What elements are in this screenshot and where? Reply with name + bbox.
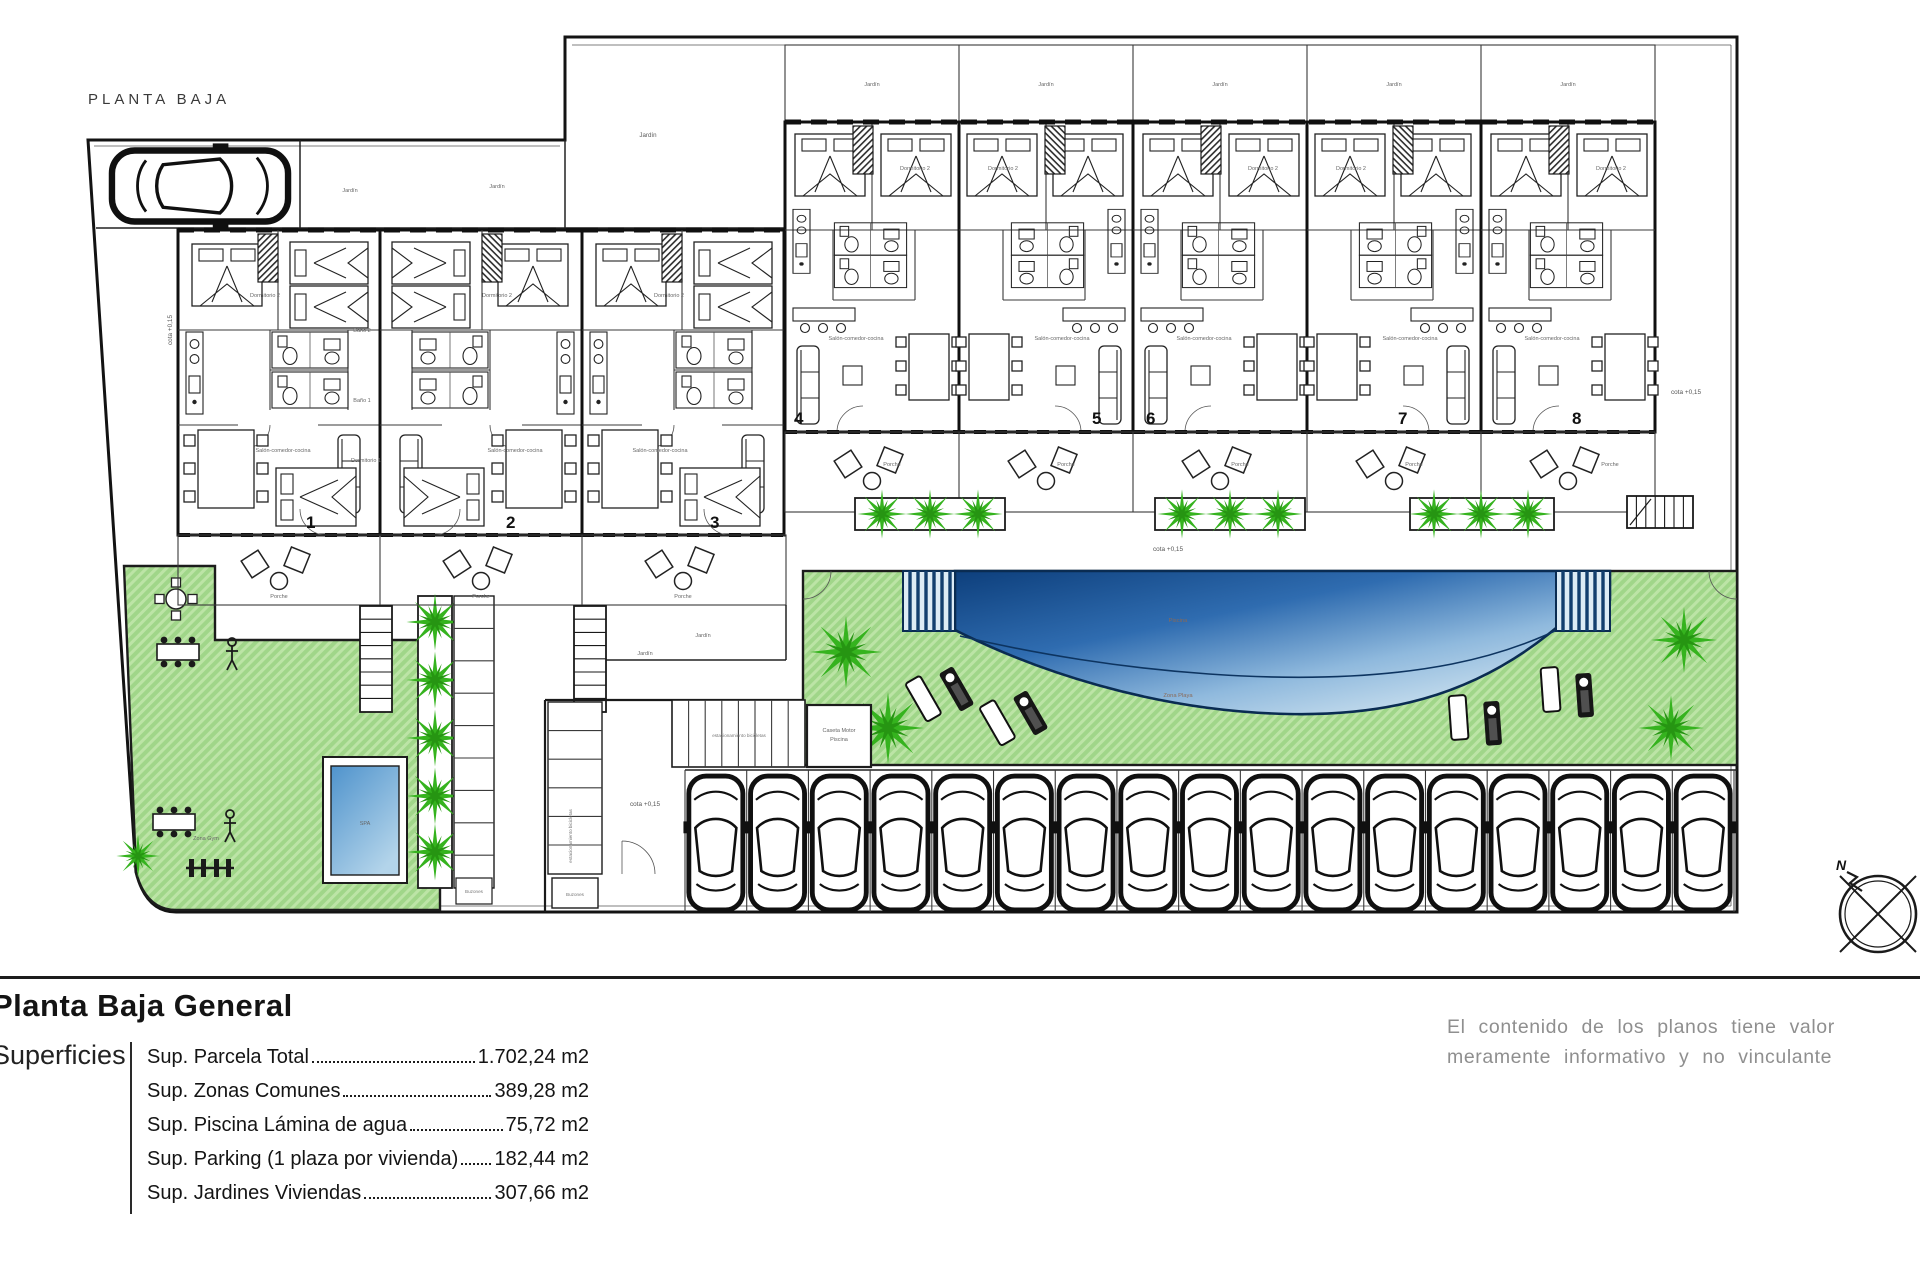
surface-value: 389,28 m2: [494, 1080, 589, 1103]
unit-number-5: 5: [1092, 409, 1101, 428]
stairs-icon: [360, 606, 392, 712]
level-label: cota +0,15: [167, 315, 174, 345]
room-label: Baño 2: [353, 328, 370, 334]
compass-rose: N: [1836, 857, 1916, 952]
garden-label: Jardín: [1212, 82, 1227, 88]
room-label: Salón-comedor-cocina: [828, 336, 884, 342]
porch-label: Porche: [883, 462, 900, 468]
surface-row: Sup. Parcela Total 1.702,24 m2: [147, 1046, 589, 1080]
parking-cars: [683, 776, 1735, 910]
room-label: Dormitorio 2: [482, 293, 512, 299]
garden-label: Jardín: [1386, 82, 1401, 88]
stairs-icon: [1627, 496, 1693, 528]
parked-car-icon: [930, 776, 995, 910]
dot-leader: [364, 1197, 491, 1199]
garden-label: Jardín: [1038, 82, 1053, 88]
spa-label: SPA: [360, 821, 371, 827]
room-label: Salón-comedor-cocina: [1034, 336, 1090, 342]
room-label: Dormitorio 2: [1248, 166, 1278, 172]
room-label: Dormitorio 2: [1336, 166, 1366, 172]
surface-value: 182,44 m2: [494, 1148, 589, 1171]
storage-stall-column: Buzones: [454, 596, 494, 904]
parked-car-icon: [1239, 776, 1304, 910]
surface-row: Sup. Parking (1 plaza por vivienda) 182,…: [147, 1148, 589, 1182]
room-label: Salón-comedor-cocina: [255, 448, 311, 454]
title-block-separator: [130, 1042, 132, 1214]
parked-car-icon: [683, 776, 748, 910]
title-block-divider: [0, 976, 1920, 979]
surface-label: Sup. Parking (1 plaza por vivienda): [147, 1148, 458, 1171]
disclaimer-line-1: El contenido de los planos tiene valor: [1447, 1012, 1835, 1042]
porch-label: Porche: [1601, 462, 1618, 468]
parked-car-icon: [1177, 776, 1242, 910]
parked-car-icon: [1609, 776, 1674, 910]
unit-number-6: 6: [1146, 409, 1155, 428]
parked-car-icon: [869, 776, 934, 910]
sheet-title: Planta Baja General: [0, 988, 293, 1024]
palm-tree-icon: [1651, 607, 1717, 673]
level-label: cota +0,15: [1153, 546, 1183, 553]
porch-label: Porche: [1231, 462, 1248, 468]
surface-label: Sup. Zonas Comunes: [147, 1080, 340, 1103]
garden-label: Jardín: [639, 132, 657, 139]
surface-table: Sup. Parcela Total 1.702,24 m2 Sup. Zona…: [147, 1046, 589, 1216]
svg-text:Caseta Motor: Caseta Motor: [822, 728, 855, 734]
surfaces-heading: Superficies: [0, 1040, 126, 1071]
room-label: Salón-comedor-cocina: [632, 448, 688, 454]
unit-number-3: 3: [710, 513, 719, 532]
surface-label: Sup. Jardines Viviendas: [147, 1182, 361, 1205]
porch-label: Porche: [1405, 462, 1422, 468]
porch-label: Porche: [1057, 462, 1074, 468]
mailboxes-label: Buzones: [566, 892, 585, 897]
room-label: Dormitorio 2: [654, 293, 684, 299]
parked-car-icon: [1486, 776, 1551, 910]
parked-car-icon: [1301, 776, 1366, 910]
dot-leader: [410, 1129, 502, 1131]
room-label: Dormitorio 2: [988, 166, 1018, 172]
palm-tree-icon: [1638, 695, 1704, 761]
room-label: Salón-comedor-cocina: [1382, 336, 1438, 342]
room-label: Salón-comedor-cocina: [487, 448, 543, 454]
room-label: Dormitorio 2: [250, 293, 280, 299]
mailboxes-label: Buzones: [465, 889, 484, 894]
parked-car-icon: [1054, 776, 1119, 910]
dot-leader: [461, 1163, 491, 1165]
pool-garden: Piscina Zona Playa: [803, 571, 1737, 765]
parked-car-icon: [1671, 776, 1736, 910]
plan-title: PLANTA BAJA: [88, 91, 230, 108]
level-label: cota +0,15: [1671, 389, 1701, 396]
bike-parking-label: estacionamiento bicicletas: [568, 808, 573, 862]
room-label: Dormitorio 1: [351, 458, 381, 464]
garden-label: Jardín: [489, 184, 504, 190]
pool-label: Piscina: [1169, 618, 1188, 624]
site-plan-drawing: PLANTA BAJA Jardín Jardín Jardín cota +0…: [0, 0, 1920, 978]
porch-label: Porche: [270, 594, 287, 600]
unit-number-8: 8: [1572, 409, 1581, 428]
surface-row: Sup. Piscina Lámina de agua 75,72 m2: [147, 1114, 589, 1148]
bike-parking-label: estacionamiento bicicletas: [712, 733, 766, 738]
surface-value: 75,72 m2: [506, 1114, 589, 1137]
parked-car-icon: [992, 776, 1057, 910]
north-label: N: [1836, 857, 1847, 873]
unit-number-1: 1: [306, 513, 315, 532]
room-label: Dormitorio 2: [900, 166, 930, 172]
gym-zone-label: Zona Gym: [193, 836, 219, 842]
garden-label: Jardín: [1560, 82, 1575, 88]
unit-number-4: 4: [794, 409, 804, 428]
stairs-icon: [574, 606, 606, 712]
parked-car-icon: [745, 776, 810, 910]
room-label: Salón-comedor-cocina: [1524, 336, 1580, 342]
palm-tree-icon: [116, 834, 159, 877]
disclaimer-line-2: meramente informativo y no vinculante: [1447, 1042, 1835, 1072]
surface-row: Sup. Zonas Comunes 389,28 m2: [147, 1080, 589, 1114]
disclaimer-text: El contenido de los planos tiene valor m…: [1447, 1012, 1835, 1072]
parked-car-icon: [1115, 776, 1180, 910]
garden-label: Jardín: [342, 188, 357, 194]
parked-car-icon: [112, 143, 288, 228]
surface-value: 307,66 m2: [494, 1182, 589, 1205]
beach-zone-label: Zona Playa: [1163, 693, 1193, 699]
porch-label: Porche: [472, 594, 489, 600]
room-label: Salón-comedor-cocina: [1176, 336, 1232, 342]
parked-car-icon: [1424, 776, 1489, 910]
floor-plan-page: { "plan": { "title": "PLANTA BAJA", "uni…: [0, 0, 1920, 1280]
surface-row: Sup. Jardines Viviendas 307,66 m2: [147, 1182, 589, 1216]
unit-number-2: 2: [506, 513, 515, 532]
parked-car-icon: [1547, 776, 1612, 910]
parked-car-icon: [1362, 776, 1427, 910]
surface-label: Sup. Parcela Total: [147, 1046, 309, 1069]
level-label: cota +0,15: [630, 801, 660, 808]
dot-leader: [343, 1095, 491, 1097]
surface-value: 1.702,24 m2: [478, 1046, 589, 1069]
garden-label: Jardín: [864, 82, 879, 88]
palm-tree-icon: [810, 616, 882, 688]
unit-number-7: 7: [1398, 409, 1407, 428]
pool-motor-shed: Caseta Motor Piscina: [807, 705, 871, 767]
garden-label: Jardín: [695, 633, 710, 639]
entry-car-bay: [96, 140, 785, 229]
spa-pool: SPA: [323, 757, 407, 883]
room-label: Baño 1: [353, 398, 370, 404]
garden-label: Jardín: [637, 651, 652, 657]
surface-label: Sup. Piscina Lámina de agua: [147, 1114, 407, 1137]
porch-label: Porche: [674, 594, 691, 600]
dot-leader: [312, 1061, 475, 1063]
porch-planters: [855, 489, 1554, 538]
parked-car-icon: [807, 776, 872, 910]
room-label: Dormitorio 2: [1596, 166, 1626, 172]
svg-text:Piscina: Piscina: [830, 737, 849, 743]
